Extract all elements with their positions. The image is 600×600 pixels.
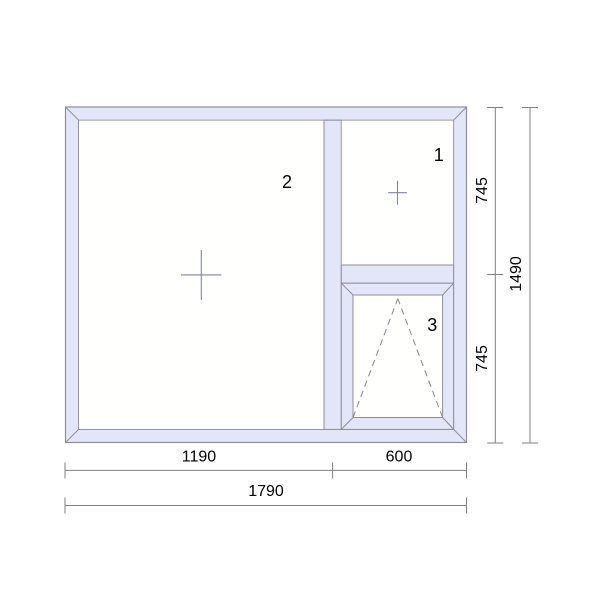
svg-text:1490: 1490: [508, 256, 525, 292]
svg-text:2: 2: [282, 172, 292, 192]
svg-text:1190: 1190: [182, 448, 217, 465]
svg-text:1: 1: [434, 145, 444, 165]
svg-text:745: 745: [474, 177, 491, 204]
svg-text:1790: 1790: [248, 483, 284, 500]
svg-text:745: 745: [474, 345, 491, 372]
svg-text:3: 3: [427, 315, 437, 335]
svg-text:600: 600: [386, 448, 413, 465]
